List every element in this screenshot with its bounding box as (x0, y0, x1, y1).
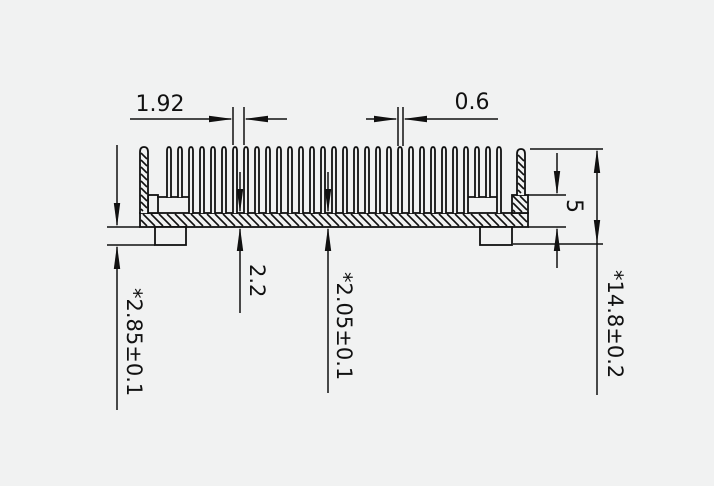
fin (409, 147, 413, 213)
arrowhead (594, 149, 600, 173)
fin (255, 147, 259, 213)
fin (365, 147, 369, 213)
fin (453, 147, 457, 213)
arrowhead (237, 227, 243, 251)
arrowhead (554, 171, 560, 195)
fin (343, 147, 347, 213)
fin (233, 147, 237, 213)
fin (387, 147, 391, 213)
fin (189, 147, 193, 213)
fin (299, 147, 303, 213)
dimension-labels: 1.92 0.6 5 2.2 *2.05±0.1 *2.85±0.1 *14.8… (122, 90, 627, 396)
left-end-step (148, 195, 158, 213)
arrowhead (554, 227, 560, 251)
dim-label-base-thickness: 2.2 (245, 264, 269, 297)
fin (442, 147, 446, 213)
arrowhead (374, 116, 398, 122)
fin (431, 147, 435, 213)
fin (277, 147, 281, 213)
left-mounting-foot (155, 227, 186, 245)
dim-label-fin-thickness: 0.6 (455, 90, 490, 115)
fin (167, 147, 171, 197)
fin (475, 147, 479, 197)
dim-label-overall-height: *14.8±0.2 (603, 270, 627, 378)
fin (420, 147, 424, 213)
fin-array (167, 147, 501, 213)
fin (464, 147, 468, 213)
arrowhead (325, 227, 331, 251)
dim-label-standoff-height: *2.85±0.1 (122, 288, 146, 396)
fin (200, 147, 204, 213)
fin (486, 147, 490, 197)
arrowhead (209, 116, 233, 122)
arrowhead (594, 220, 600, 244)
fin (376, 147, 380, 213)
dim-label-base-groove-thickness: *2.05±0.1 (332, 272, 356, 380)
fin (497, 147, 501, 213)
fin (332, 147, 336, 213)
fin (288, 147, 292, 213)
fin (354, 147, 358, 213)
drawing-canvas: 1.92 0.6 5 2.2 *2.05±0.1 *2.85±0.1 *14.8… (0, 0, 714, 486)
fin (398, 147, 402, 213)
heatsink-drawing: 1.92 0.6 5 2.2 *2.05±0.1 *2.85±0.1 *14.8… (0, 0, 714, 486)
arrowhead (114, 245, 120, 269)
fin (310, 147, 314, 213)
dim-label-end-step-height: 5 (561, 199, 586, 213)
right-mounting-foot (480, 227, 512, 245)
fin (244, 147, 248, 213)
fin (266, 147, 270, 213)
dim-label-fin-pitch: 1.92 (136, 92, 185, 117)
fin (211, 147, 215, 213)
arrowhead (114, 203, 120, 227)
fin (178, 147, 182, 197)
fin (321, 147, 325, 213)
heatsink-profile (140, 147, 528, 245)
arrowhead (244, 116, 268, 122)
fin (222, 147, 226, 213)
arrowhead (403, 116, 427, 122)
